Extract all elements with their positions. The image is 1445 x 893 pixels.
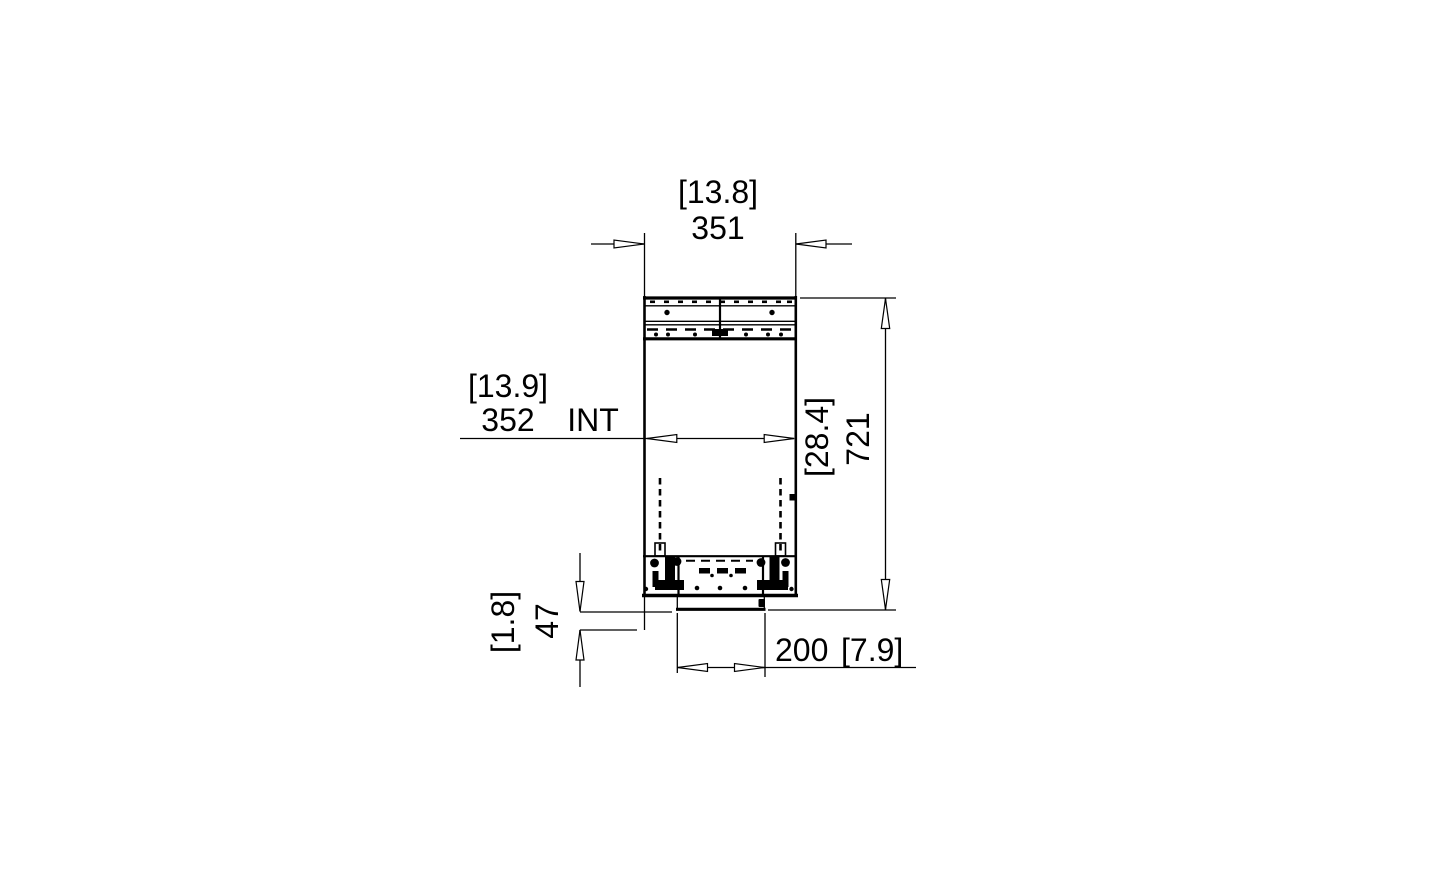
top-burner-assembly <box>643 298 797 339</box>
dim-label-mm: 47 <box>529 603 565 639</box>
dim-arrow-down-icon <box>881 580 889 610</box>
dim-label-inches: [1.8] <box>485 591 521 653</box>
left-bracket-cluster <box>644 557 684 595</box>
dim-arrow-left-icon <box>796 240 826 248</box>
dim-arrow-right-icon <box>614 240 644 248</box>
dim-arrow-down-icon <box>576 582 584 612</box>
technical-drawing: [13.8] 351 [13.9] 352 INT [28.4] 721 [1.… <box>0 0 1445 893</box>
dim-label-mm: 200 <box>775 632 828 668</box>
dim-arrow-up-icon <box>881 299 889 329</box>
dim-label-inches: [13.9] <box>468 368 548 404</box>
dim-label-mm: 721 <box>840 412 876 465</box>
dim-arrow-right-icon <box>735 664 765 672</box>
right-wall-fitting <box>790 494 796 501</box>
drawing-canvas: [13.8] 351 [13.9] 352 INT [28.4] 721 [1.… <box>0 0 1445 893</box>
screw-dot-right <box>769 310 774 315</box>
dim-arrow-left-icon <box>678 664 708 672</box>
dim-arrow-right-icon <box>764 435 794 443</box>
drain-fitting <box>759 599 766 607</box>
dim-top-width: [13.8] 351 <box>591 174 852 296</box>
right-bracket-cluster <box>757 557 794 595</box>
dim-label-inches: [28.4] <box>799 397 835 477</box>
dim-internal-width: [13.9] 352 INT <box>460 368 794 443</box>
hidden-lines <box>655 478 786 556</box>
dim-label-mm: 352 <box>481 402 534 438</box>
bottom-mounting-assembly <box>642 556 798 595</box>
dim-label-inches: [7.9] <box>841 632 903 668</box>
base-tab-marks <box>699 568 746 577</box>
screw-dot-left <box>664 310 669 315</box>
dim-label-mm: 351 <box>691 210 744 246</box>
dim-arrow-up-icon <box>576 630 584 660</box>
base-dot-row <box>695 586 748 591</box>
dim-label-inches: [13.8] <box>678 174 758 210</box>
dim-bottom-width: 200 [7.9] <box>677 613 916 677</box>
center-fitting-block <box>712 329 728 336</box>
bottom-protrusion <box>676 597 766 609</box>
dim-arrow-left-icon <box>647 435 677 443</box>
dim-label-suffix: INT <box>567 402 619 438</box>
